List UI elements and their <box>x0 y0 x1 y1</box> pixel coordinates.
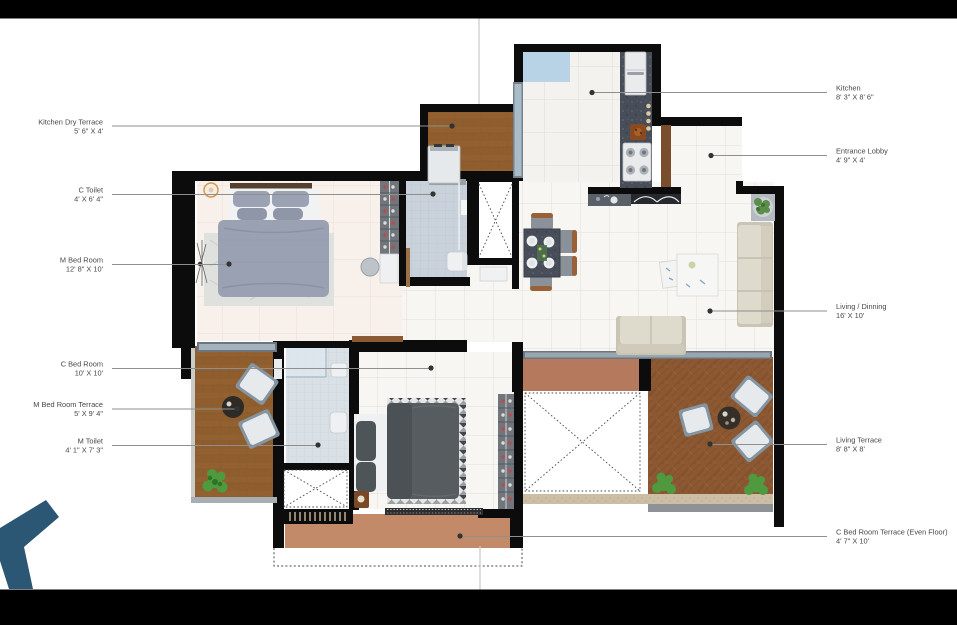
svg-text:16' X 10': 16' X 10' <box>836 311 865 320</box>
svg-text:5' X 9' 4": 5' X 9' 4" <box>74 409 103 418</box>
svg-text:Living / Dinning: Living / Dinning <box>836 302 887 311</box>
svg-text:5' 6" X 4': 5' 6" X 4' <box>74 127 103 136</box>
svg-text:M Bed Room: M Bed Room <box>60 256 103 265</box>
svg-text:8' 3" X 8' 6": 8' 3" X 8' 6" <box>836 93 874 102</box>
svg-text:4' 7" X 10': 4' 7" X 10' <box>836 537 870 546</box>
svg-text:12' 8" X 10': 12' 8" X 10' <box>66 265 104 274</box>
svg-text:Kitchen: Kitchen <box>836 84 861 93</box>
svg-text:10' X 10': 10' X 10' <box>75 369 104 378</box>
svg-text:Kitchen Dry Terrace: Kitchen Dry Terrace <box>38 118 103 127</box>
svg-text:Living Terrace: Living Terrace <box>836 436 882 445</box>
svg-text:C Toilet: C Toilet <box>78 186 103 195</box>
svg-text:C Bed Room Terrace (Even Floor: C Bed Room Terrace (Even Floor) <box>836 528 948 537</box>
svg-text:C Bed Room: C Bed Room <box>61 360 103 369</box>
svg-text:8' 8" X 8': 8' 8" X 8' <box>836 445 865 454</box>
svg-text:Entrance Lobby: Entrance Lobby <box>836 147 888 156</box>
svg-text:M Toilet: M Toilet <box>78 437 103 446</box>
svg-text:4' 1" X 7' 3": 4' 1" X 7' 3" <box>65 446 103 455</box>
svg-text:4' X 6' 4": 4' X 6' 4" <box>74 195 103 204</box>
svg-text:M Bed Room Terrace: M Bed Room Terrace <box>33 400 103 409</box>
svg-text:4' 9" X 4': 4' 9" X 4' <box>836 156 865 165</box>
